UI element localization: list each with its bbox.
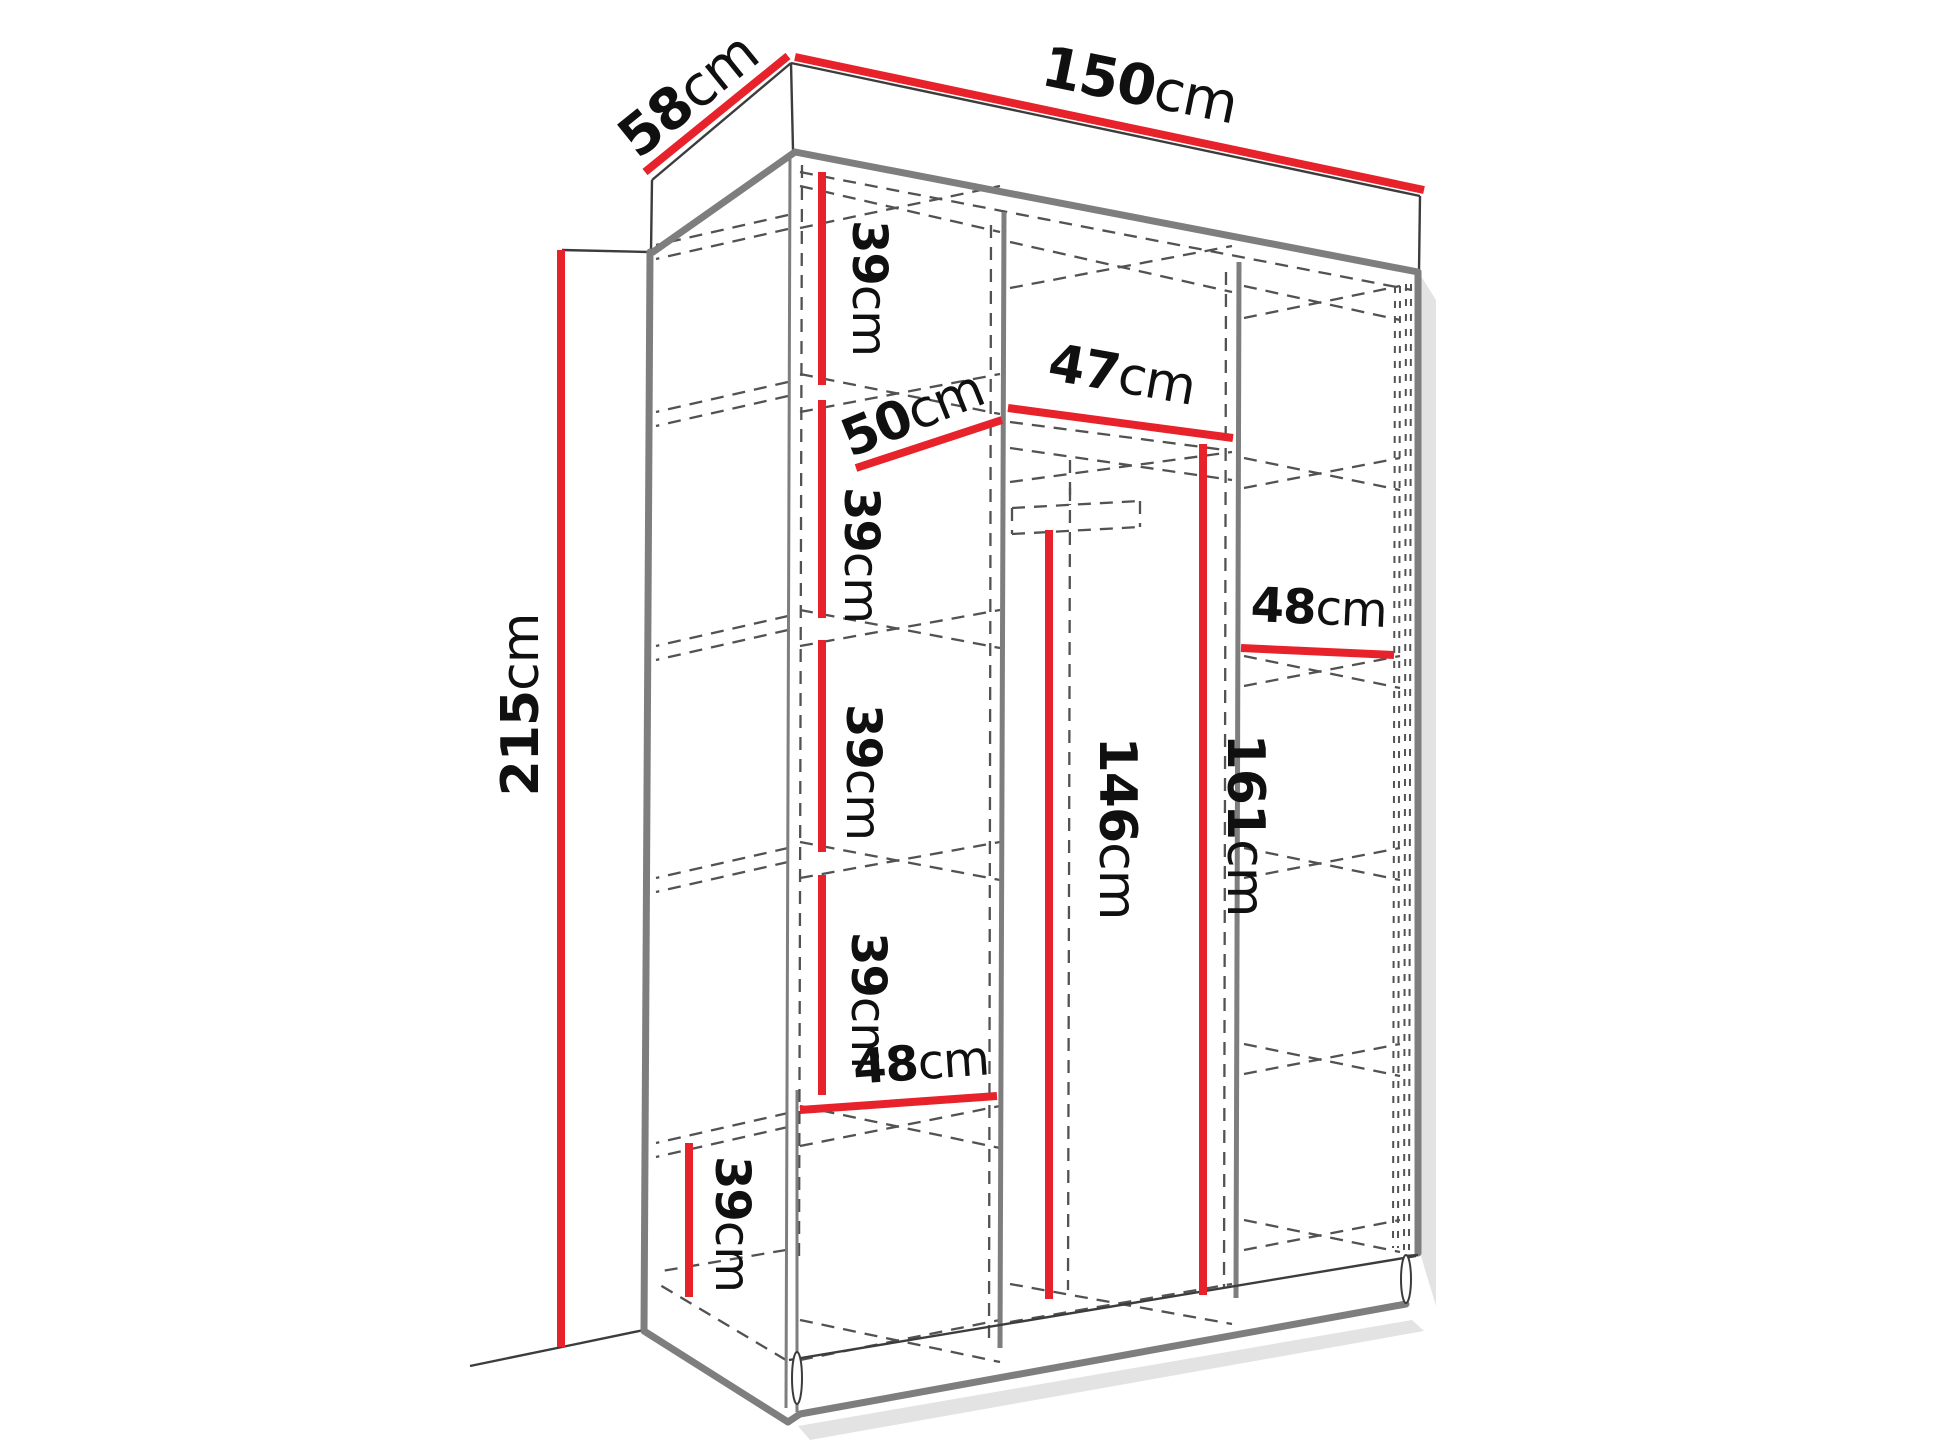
door-roller-left [792,1352,802,1404]
left-shelf-gap-1-label: 39cm [841,220,897,356]
left-shelf-gap-3-label: 39cm [835,704,891,840]
hidden-edges-dashed [656,165,1412,1362]
door-roller-right [1401,1255,1411,1303]
carcass-edges [470,63,1420,1422]
dim-line-right-width [1241,648,1394,655]
right-column-width-label: 48cm [1250,577,1388,639]
diagram-canvas: 58cm 150cm 215cm 39cm 50cm 39cm 47cm 39c… [0,0,1940,1456]
left-shelf-gap-2-label: 39cm [833,487,889,623]
left-bottom-width-label: 48cm [851,1030,991,1095]
wardrobe-dimension-diagram: 58cm 150cm 215cm 39cm 50cm 39cm 47cm 39c… [0,0,1940,1456]
left-bottom-gap-label: 39cm [704,1156,760,1292]
dim-line-middle-width [1008,408,1233,438]
middle-column-width-label: 47cm [1044,333,1200,418]
height-total-label: 215cm [491,614,551,797]
dim-line-left-bottom-width [800,1096,997,1110]
hanging-height-label: 146cm [1087,737,1147,920]
middle-inner-height-label: 161cm [1215,734,1275,917]
